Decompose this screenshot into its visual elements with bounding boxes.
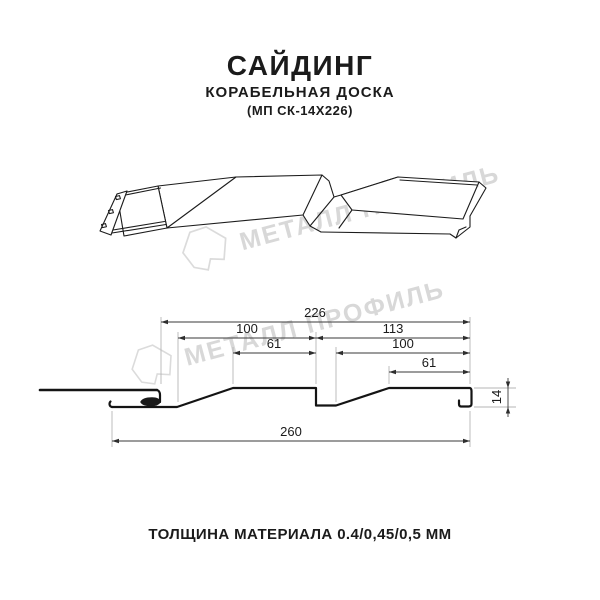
- watermark-brand-text: МЕТАЛЛ ПРОФИЛЬ: [181, 275, 447, 371]
- product-drawing-page: САЙДИНГ КОРАБЕЛЬНАЯ ДОСКА (МП СК-14Х226)…: [0, 0, 600, 600]
- dim-label-14: 14: [489, 390, 504, 404]
- dim-label-61-left: 61: [267, 336, 281, 351]
- section-profile: [112, 388, 472, 407]
- metal-profil-logo-icon: [128, 341, 177, 388]
- dim-label-113: 113: [383, 321, 404, 336]
- dim-label-260: 260: [280, 424, 302, 439]
- dim-label-100-right: 100: [392, 336, 414, 351]
- technical-drawing-canvas: МЕТАЛЛ ПРОФИЛЬ МЕТАЛЛ ПРОФИЛЬ: [0, 0, 600, 600]
- dim-label-61-right: 61: [422, 355, 436, 370]
- material-thickness-note: ТОЛЩИНА МАТЕРИАЛА 0.4/0,45/0,5 ММ: [0, 526, 600, 543]
- dim-label-100-left: 100: [236, 321, 258, 336]
- metal-profil-logo-icon: [178, 223, 232, 275]
- dim-label-226: 226: [304, 305, 326, 320]
- interlock-hook: [141, 398, 160, 406]
